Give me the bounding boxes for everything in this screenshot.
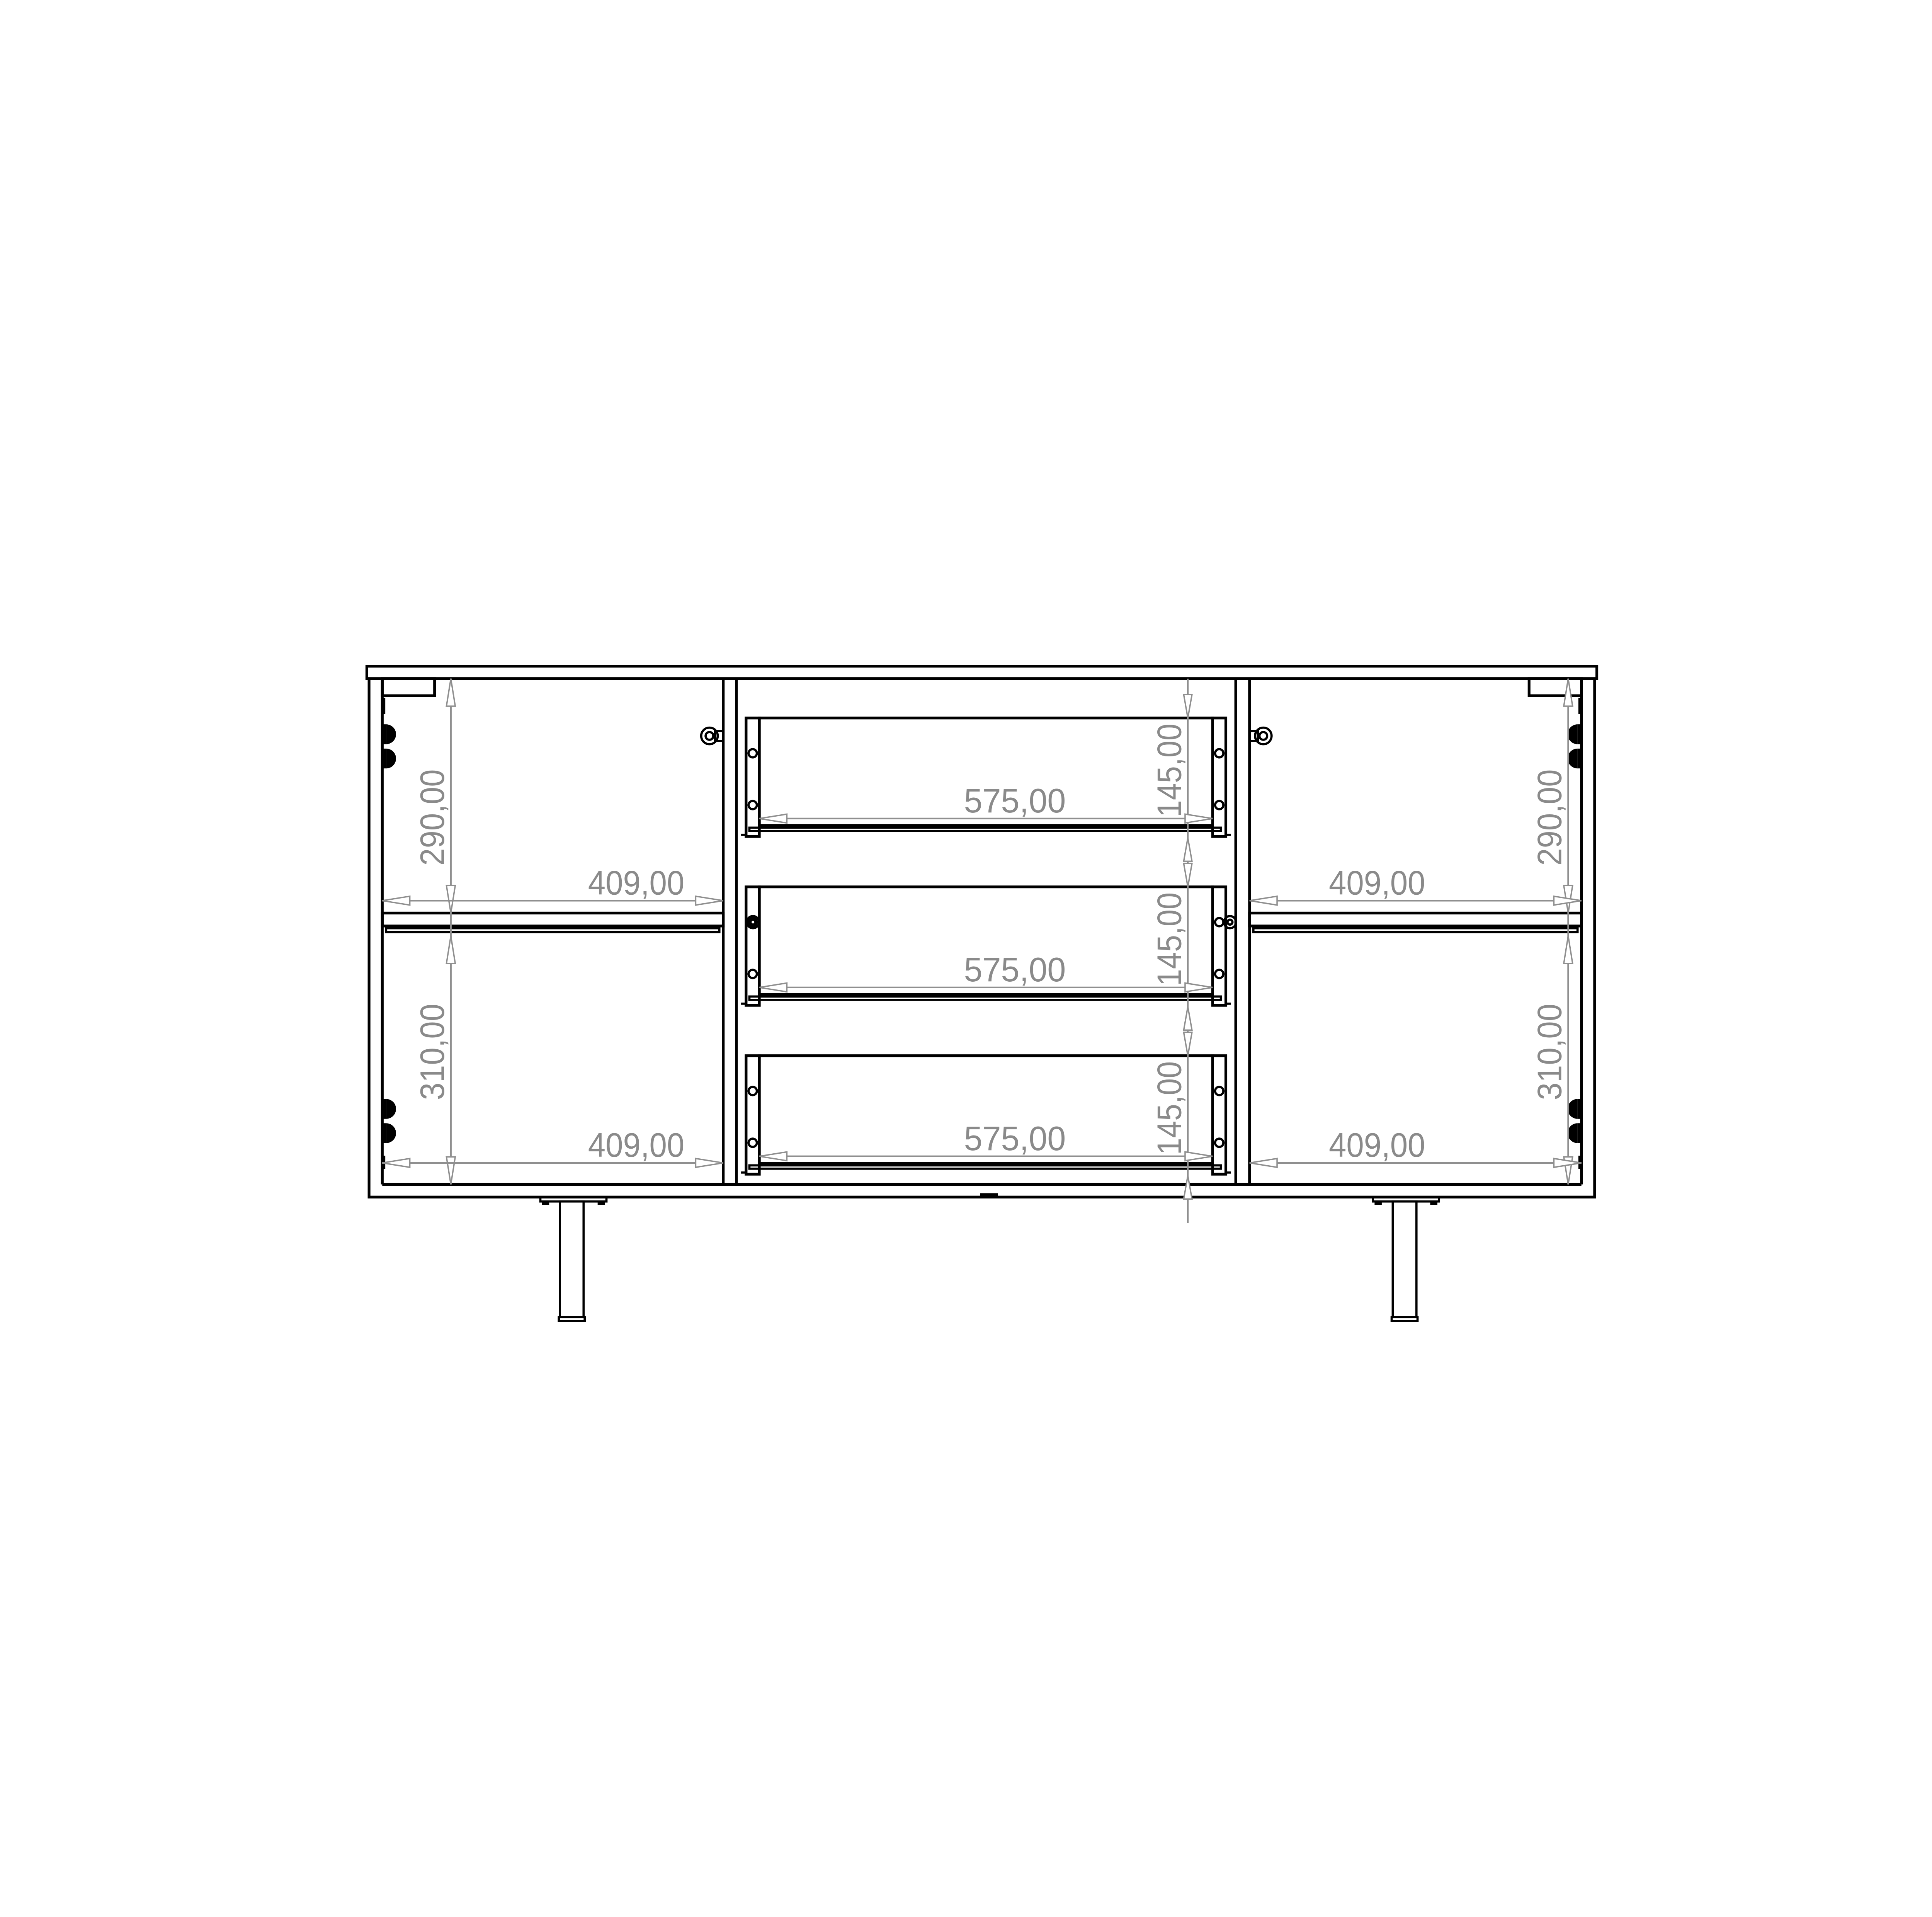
cam-lock-icon [706, 732, 713, 740]
dim-text-drawer3-width: 575,00 [964, 1119, 1066, 1158]
leg-plate-screw [1374, 1202, 1382, 1205]
door-edge-mark-top-right [1578, 698, 1582, 714]
leg-plate-screw [542, 1202, 549, 1205]
dim-arrow-down [446, 885, 455, 913]
dim-arrow-left [1250, 896, 1277, 905]
screw-hole-icon [748, 1087, 757, 1095]
dim-text-drawer1-height: 145,00 [1150, 724, 1188, 817]
drawer-side-bracket-right [1213, 718, 1226, 836]
technical-drawing-sideboard-front-view: 290,00 310,00 409,00 409,00 290,00 310,0… [0, 0, 1932, 1917]
screw-hole-icon [748, 749, 757, 757]
drawer-side-bracket-left [746, 718, 759, 836]
cam-lock-icon [1228, 920, 1233, 925]
screw-hole-icon [748, 801, 757, 809]
hinge-cup-icon [386, 1099, 396, 1119]
dim-arrow-left [382, 896, 410, 905]
left-section-shelf [382, 913, 723, 932]
dim-text-left-lower-height: 310,00 [413, 1004, 451, 1100]
drawer-slide-rail [749, 827, 1221, 831]
hinge-icon [382, 1123, 386, 1143]
dim-text-left-upper-height: 290,00 [413, 769, 451, 865]
hinge-cup-icon [386, 749, 396, 768]
dim-arrow-left [1250, 1158, 1277, 1167]
drawer-slide-rail [749, 1165, 1221, 1169]
dim-text-left-lower-width: 409,00 [588, 1126, 684, 1164]
dim-text-right-lower-width: 409,00 [1329, 1126, 1425, 1164]
dim-arrow-left [759, 983, 787, 992]
hinge-cup-icon [386, 724, 396, 744]
shelf-front-rail-right [1253, 928, 1578, 932]
dim-arrow-right [1185, 1152, 1213, 1161]
dim-text-drawer2-width: 575,00 [964, 950, 1066, 989]
drawing-page: 290,00 310,00 409,00 409,00 290,00 310,0… [0, 0, 1932, 1917]
screw-hole-icon [1215, 970, 1223, 978]
screw-hole-icon [1215, 1139, 1223, 1147]
dim-arrow-down [1184, 695, 1192, 718]
shelf-panel-right [1250, 913, 1582, 926]
drawer-side-bracket-right [1213, 1056, 1226, 1174]
hinge-icon [382, 724, 386, 744]
screw-hole-icon [1215, 749, 1223, 757]
drawer-slide-rail [749, 996, 1221, 1000]
screw-hole-icon [748, 1139, 757, 1147]
dim-arrow-up [446, 936, 455, 964]
hinge-icon [1578, 724, 1582, 744]
dim-text-drawer3-height: 145,00 [1150, 1061, 1188, 1155]
hinge-icon [382, 749, 386, 768]
right-wall-hinges [1568, 698, 1582, 1169]
dim-arrow-left [759, 1152, 787, 1161]
shelf-panel-left [382, 913, 723, 926]
hinge-icon [382, 1099, 386, 1119]
dim-arrow-up [1184, 838, 1192, 861]
screw-hole-icon [748, 970, 757, 978]
screw-hole-icon [1215, 801, 1223, 809]
dim-arrow-down [446, 1157, 455, 1184]
hinge-cup-icon [1568, 749, 1578, 768]
top-panel [367, 666, 1597, 679]
dim-arrow-up [1564, 679, 1573, 706]
dim-arrow-right [1185, 814, 1213, 823]
screw-hole-icon [1215, 1087, 1223, 1095]
right-section-shelf [1250, 913, 1582, 932]
leg-plate-screw [1430, 1202, 1437, 1205]
left-leg [540, 1197, 606, 1321]
screw-hole-icon [1215, 918, 1223, 926]
dim-text-drawer2-height: 145,00 [1150, 892, 1188, 986]
hinge-icon [1578, 749, 1582, 768]
leg-body [560, 1202, 583, 1317]
hinge-cup-icon [1568, 1099, 1578, 1119]
dim-arrow-right [696, 1158, 723, 1167]
leg-foot [559, 1317, 585, 1321]
corner-bracket-top-left [382, 679, 434, 696]
bottom-center-glide [980, 1193, 998, 1197]
dim-text-left-upper-width: 409,00 [588, 864, 684, 902]
cam-lock-icon [1259, 732, 1267, 740]
dim-arrow-down [1184, 863, 1192, 887]
dim-arrow-right [1185, 983, 1213, 992]
leg-foot [1392, 1317, 1418, 1321]
hinge-cup-icon [386, 1123, 396, 1143]
dim-arrow-right [696, 896, 723, 905]
leg-body [1393, 1202, 1416, 1317]
dim-text-drawer1-width: 575,00 [964, 781, 1066, 820]
hinge-cup-icon [1568, 1123, 1578, 1143]
dim-arrow-up [1564, 936, 1573, 964]
leg-plate-screw [598, 1202, 605, 1205]
dim-arrow-left [382, 1158, 410, 1167]
corner-bracket-top-right [1529, 679, 1581, 696]
hinge-icon [1578, 1099, 1582, 1119]
cam-lock-icon [750, 920, 755, 925]
drawer-side-bracket-left [746, 887, 759, 1005]
dim-arrow-left [759, 814, 787, 823]
dim-text-right-lower-height: 310,00 [1531, 1004, 1569, 1100]
right-leg [1373, 1197, 1439, 1321]
drawer-side-bracket-left [746, 1056, 759, 1174]
dim-arrow-up [1184, 1007, 1192, 1030]
drawer-side-bracket-right [1213, 887, 1226, 1005]
door-edge-mark-top-left [382, 698, 385, 714]
dim-text-right-upper-width: 409,00 [1329, 864, 1425, 902]
left-wall-hinges [382, 698, 396, 1169]
dim-arrow-up [446, 679, 455, 706]
dim-drawers: 145,00 145,00 145,00 575,00 575,00 575,0… [759, 679, 1213, 1223]
shelf-front-rail-left [386, 928, 719, 932]
dim-arrow-down [1184, 1032, 1192, 1056]
dim-arrow-up [1184, 1176, 1192, 1199]
dim-text-right-upper-height: 290,00 [1531, 769, 1569, 865]
hinge-icon [1578, 1123, 1582, 1143]
hinge-cup-icon [1568, 724, 1578, 744]
